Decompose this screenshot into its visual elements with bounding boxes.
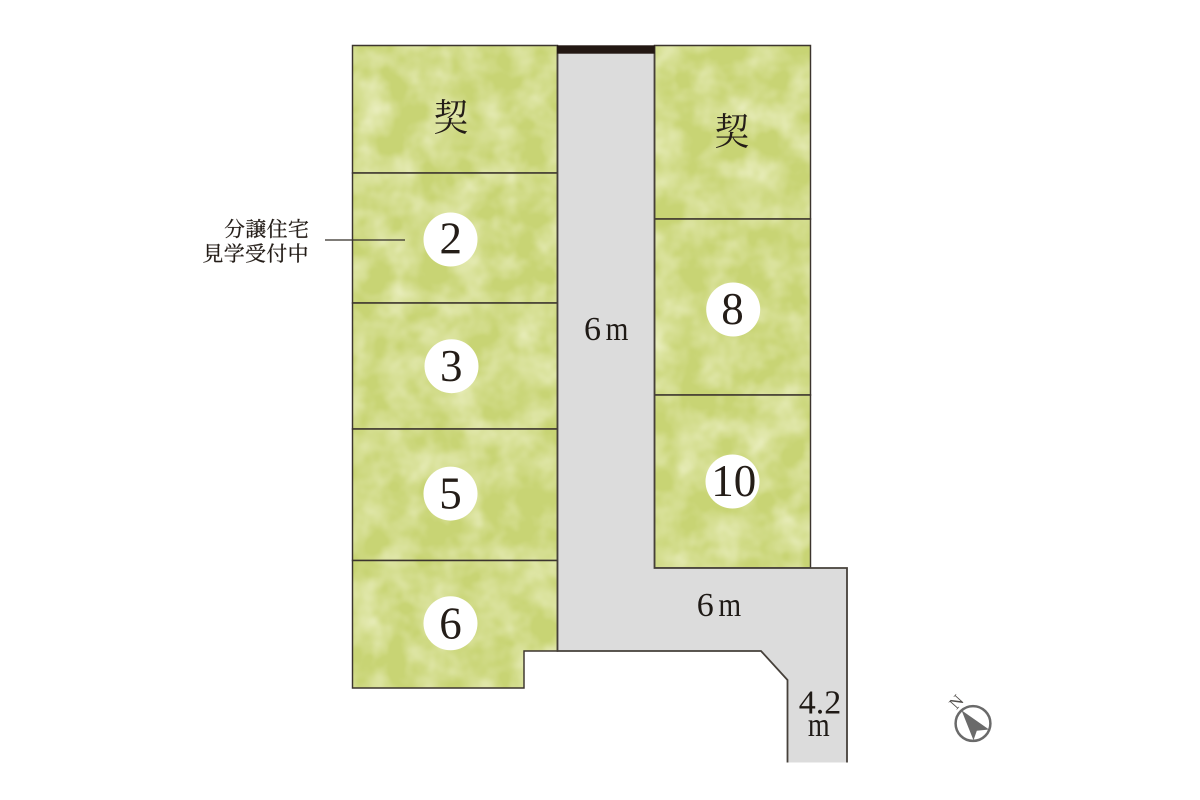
svg-text:6: 6 [439, 598, 462, 648]
svg-text:m: m [606, 311, 629, 348]
svg-text:2: 2 [439, 214, 462, 264]
svg-text:m: m [808, 707, 830, 744]
svg-text:5: 5 [439, 469, 462, 519]
svg-text:6: 6 [697, 587, 714, 624]
svg-text:m: m [718, 587, 741, 624]
svg-text:10: 10 [711, 456, 756, 506]
svg-text:8: 8 [721, 284, 744, 334]
svg-text:6: 6 [584, 311, 601, 348]
svg-text:3: 3 [440, 341, 463, 391]
